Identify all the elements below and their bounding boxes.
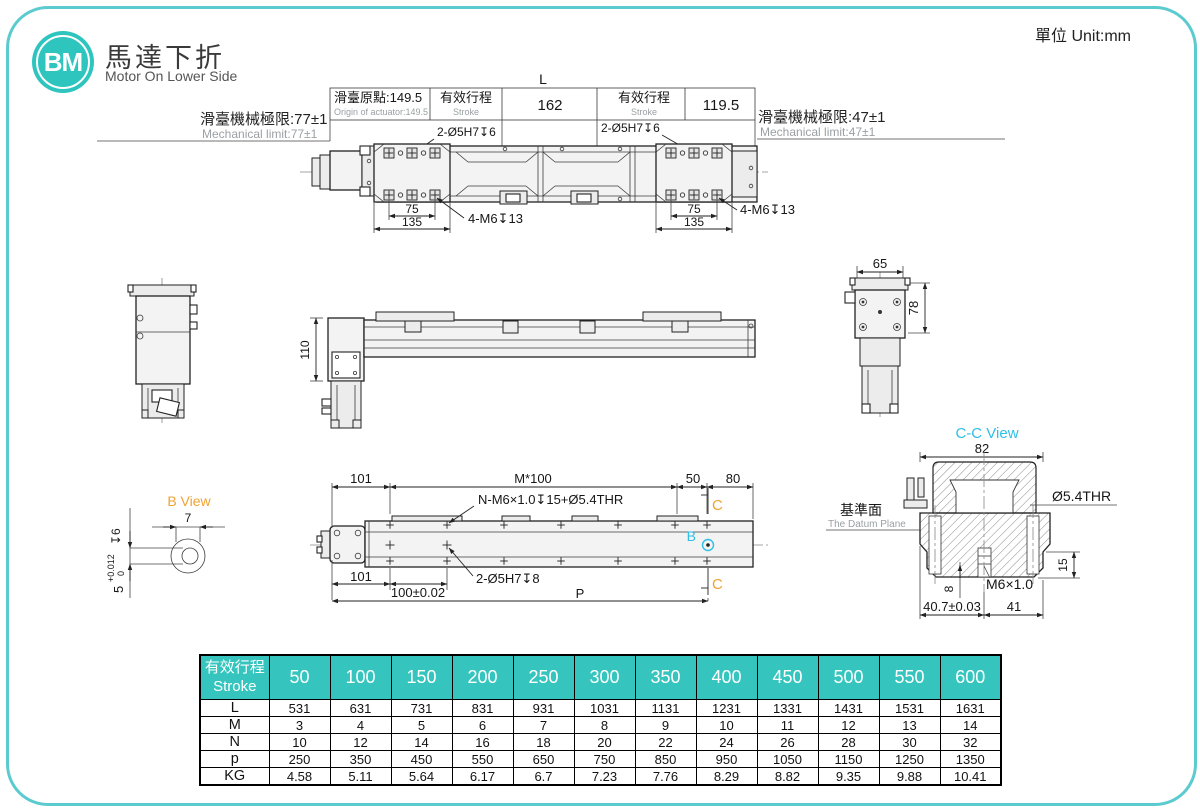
table-header-col: 100 xyxy=(330,655,391,700)
table-header-col: 600 xyxy=(940,655,1001,700)
table-row: p250350450550650750850950105011501250135… xyxy=(200,751,1001,768)
table-cell: 6.7 xyxy=(513,768,574,786)
table-cell: 7.23 xyxy=(574,768,635,786)
table-cell: 28 xyxy=(818,734,879,751)
cc-view: C-C View 82 基準面 The Datum Plane xyxy=(826,425,1117,619)
bm-logo: BM xyxy=(32,31,94,93)
marker-c-top: C xyxy=(712,497,723,514)
table-cell: 931 xyxy=(513,700,574,717)
limit-right-zh: 滑臺機械極限:47±1 xyxy=(758,109,885,126)
stroke-en-left: Stroke xyxy=(453,107,479,117)
limit-right-en: Mechanical limit:47±1 xyxy=(760,125,876,139)
table-cell: 7 xyxy=(513,717,574,734)
row-label: L xyxy=(200,700,269,717)
unit-label: 單位 Unit:mm xyxy=(1035,22,1131,46)
table-cell: 6.17 xyxy=(452,768,513,786)
table-cell: 32 xyxy=(940,734,1001,751)
table-cell: 1131 xyxy=(635,700,696,717)
hole-callout-left: 2-Ø5H7↧6 xyxy=(437,125,496,139)
table-cell: 9 xyxy=(635,717,696,734)
table-cell: 10 xyxy=(269,734,330,751)
callout-holes: N-M6×1.0↧15+Ø5.4THR xyxy=(478,492,623,507)
table-cell: 1231 xyxy=(696,700,757,717)
table-cell: 5.11 xyxy=(330,768,391,786)
origin-zh: 滑臺原點:149.5 xyxy=(334,90,422,105)
dim-8: 8 xyxy=(942,585,956,592)
table-cell: 26 xyxy=(757,734,818,751)
dim-5: 5 xyxy=(111,586,126,593)
table-cell: 1331 xyxy=(757,700,818,717)
dim-119-5: 119.5 xyxy=(703,97,739,114)
table-cell: 731 xyxy=(391,700,452,717)
screw-callout-right: 4-M6↧13 xyxy=(740,202,795,217)
dim-7: 7 xyxy=(185,511,192,525)
table-cell: 750 xyxy=(574,751,635,768)
table-row: L531631731831931103111311231133114311531… xyxy=(200,700,1001,717)
table-cell: 450 xyxy=(391,751,452,768)
row-label: M xyxy=(200,717,269,734)
table-cell: 9.35 xyxy=(818,768,879,786)
dim-78: 78 xyxy=(906,301,921,315)
bm-logo-ring: BM xyxy=(36,35,90,89)
table-cell: 1350 xyxy=(940,751,1001,768)
dim-101-bottom: 101 xyxy=(350,569,372,584)
marker-b: B xyxy=(687,528,696,544)
table-cell: 6 xyxy=(452,717,513,734)
row-label: KG xyxy=(200,768,269,786)
hole-callout-right: 2-Ø5H7↧6 xyxy=(601,121,660,135)
table-cell: 13 xyxy=(879,717,940,734)
table-cell: 5.64 xyxy=(391,768,452,786)
row-label: N xyxy=(200,734,269,751)
dim-135-right: 135 xyxy=(684,215,704,229)
table-cell: 10 xyxy=(696,717,757,734)
dim-80: 80 xyxy=(726,471,740,486)
table-header-col: 250 xyxy=(513,655,574,700)
table-row: KG4.585.115.646.176.77.237.768.298.829.3… xyxy=(200,768,1001,786)
table-header-col: 150 xyxy=(391,655,452,700)
table-header-col: 500 xyxy=(818,655,879,700)
table-cell: 950 xyxy=(696,751,757,768)
table-cell: 831 xyxy=(452,700,513,717)
dim-L: L xyxy=(539,71,547,87)
dim-40-7: 40.7±0.03 xyxy=(923,599,981,614)
table-cell: 11 xyxy=(757,717,818,734)
table-cell: 350 xyxy=(330,751,391,768)
row-label: p xyxy=(200,751,269,768)
datum-en: The Datum Plane xyxy=(828,519,906,530)
cc-view-title: C-C View xyxy=(955,425,1018,442)
table-row: N101214161820222426283032 xyxy=(200,734,1001,751)
table-cell: 1250 xyxy=(879,751,940,768)
top-view: L 滑臺原點:149.5 Origin of actuator:149.5 有效… xyxy=(97,71,1005,233)
dim-41: 41 xyxy=(1007,599,1021,614)
table-header-stroke: 有效行程Stroke xyxy=(200,655,269,700)
right-end-view: 65 78 xyxy=(845,256,930,420)
table-cell: 250 xyxy=(269,751,330,768)
dim-65: 65 xyxy=(873,256,887,271)
dim-p: P xyxy=(576,586,585,601)
table-cell: 1631 xyxy=(940,700,1001,717)
stroke-table: 有效行程Stroke501001502002503003504004505005… xyxy=(199,654,1002,786)
table-header-col: 200 xyxy=(452,655,513,700)
stroke-table-wrap: 有效行程Stroke501001502002503003504004505005… xyxy=(199,654,1002,786)
side-view: 110 xyxy=(298,312,755,428)
dim-m100: M*100 xyxy=(514,471,552,486)
b-view-title: B View xyxy=(167,493,211,509)
screw-callout-left: 4-M6↧13 xyxy=(468,211,523,226)
table-cell: 531 xyxy=(269,700,330,717)
table-cell: 8.29 xyxy=(696,768,757,786)
table-cell: 12 xyxy=(818,717,879,734)
table-cell: 631 xyxy=(330,700,391,717)
left-end-view xyxy=(128,278,197,425)
table-cell: 1031 xyxy=(574,700,635,717)
callout-thr: Ø5.4THR xyxy=(1052,488,1111,504)
table-header-col: 450 xyxy=(757,655,818,700)
depth-6: ↧6 xyxy=(109,528,123,545)
table-cell: 550 xyxy=(452,751,513,768)
dim-135-left: 135 xyxy=(402,215,422,229)
tol-lower: 0 xyxy=(116,571,126,576)
table-cell: 1150 xyxy=(818,751,879,768)
table-cell: 9.88 xyxy=(879,768,940,786)
limit-left-zh: 滑臺機械極限:77±1 xyxy=(200,111,327,128)
limit-left-en: Mechanical limit:77±1 xyxy=(202,127,318,141)
table-header-col: 300 xyxy=(574,655,635,700)
datasheet-page: L 滑臺原點:149.5 Origin of actuator:149.5 有效… xyxy=(0,0,1200,809)
b-view: B View 7 5 +0.012 0 ↧6 xyxy=(106,493,225,598)
origin-en: Origin of actuator:149.5 xyxy=(334,107,428,117)
stroke-zh-left: 有效行程 xyxy=(440,90,492,105)
callout-pins: 2-Ø5H7↧8 xyxy=(476,571,540,586)
table-cell: 14 xyxy=(391,734,452,751)
table-cell: 650 xyxy=(513,751,574,768)
table-cell: 8.82 xyxy=(757,768,818,786)
table-cell: 4.58 xyxy=(269,768,330,786)
table-cell: 3 xyxy=(269,717,330,734)
marker-c-bottom: C xyxy=(712,576,723,593)
table-cell: 24 xyxy=(696,734,757,751)
table-cell: 22 xyxy=(635,734,696,751)
table-cell: 1050 xyxy=(757,751,818,768)
tol-upper: +0.012 xyxy=(106,554,116,582)
table-cell: 12 xyxy=(330,734,391,751)
table-header-col: 400 xyxy=(696,655,757,700)
plan-view: B C C 101 M*100 50 80 N-M6×1.0↧15+Ø5.4TH… xyxy=(310,471,768,601)
table-cell: 16 xyxy=(452,734,513,751)
table-cell: 7.76 xyxy=(635,768,696,786)
table-cell: 10.41 xyxy=(940,768,1001,786)
thread-label: M6×1.0 xyxy=(986,576,1033,592)
table-cell: 18 xyxy=(513,734,574,751)
table-cell: 1431 xyxy=(818,700,879,717)
bm-logo-text: BM xyxy=(44,47,82,78)
dim-110: 110 xyxy=(298,340,312,359)
dim-100: 100±0.02 xyxy=(391,585,445,600)
dim-15: 15 xyxy=(1056,558,1070,572)
dim-75-right: 75 xyxy=(687,202,701,216)
dim-82: 82 xyxy=(975,441,989,456)
table-cell: 8 xyxy=(574,717,635,734)
datum-zh: 基準面 xyxy=(840,502,882,518)
stroke-zh-right: 有效行程 xyxy=(618,90,670,105)
dim-50: 50 xyxy=(686,471,700,486)
table-row: M34567891011121314 xyxy=(200,717,1001,734)
page-subtitle: Motor On Lower Side xyxy=(105,68,237,84)
table-cell: 1531 xyxy=(879,700,940,717)
table-header-col: 550 xyxy=(879,655,940,700)
dim-162: 162 xyxy=(537,97,562,114)
table-cell: 5 xyxy=(391,717,452,734)
table-cell: 20 xyxy=(574,734,635,751)
table-cell: 850 xyxy=(635,751,696,768)
stroke-en-right: Stroke xyxy=(631,107,657,117)
table-cell: 4 xyxy=(330,717,391,734)
table-header-col: 50 xyxy=(269,655,330,700)
table-cell: 14 xyxy=(940,717,1001,734)
dim-75-left: 75 xyxy=(405,202,419,216)
table-cell: 30 xyxy=(879,734,940,751)
dim-101-top: 101 xyxy=(350,471,372,486)
table-header-col: 350 xyxy=(635,655,696,700)
